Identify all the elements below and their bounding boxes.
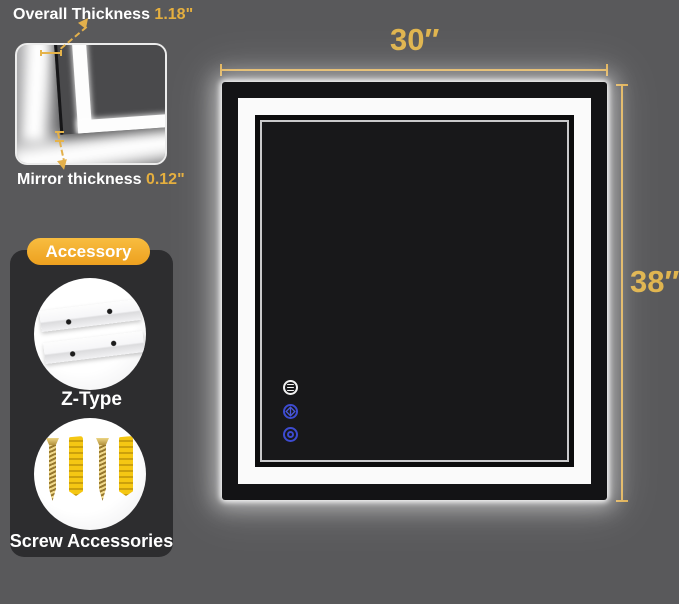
- led-mirror: [222, 82, 607, 500]
- width-dimension-label: 30″: [390, 22, 439, 58]
- mirror-thickness-value: 0.12": [146, 171, 185, 188]
- mirror-corner-photo: [15, 43, 167, 165]
- height-dimension-line: [621, 84, 623, 502]
- overall-thickness-value: 1.18": [154, 6, 193, 23]
- z-type-bracket-image: [34, 278, 146, 390]
- power-touch-button: [283, 427, 298, 442]
- wall-anchor: [119, 436, 133, 496]
- menu-lines-icon: [287, 384, 294, 386]
- z-bracket: [43, 331, 145, 364]
- menu-lines-icon: [287, 390, 294, 392]
- mirror-glass-surface: [255, 115, 574, 467]
- double-circle-icon: [287, 431, 294, 438]
- screw-accessories-label: Screw Accessories: [5, 531, 178, 552]
- accessory-badge: Accessory: [27, 238, 150, 265]
- defog-touch-button: [283, 404, 298, 419]
- defog-eye-icon: [285, 406, 296, 417]
- overall-thickness-measure-mark: [41, 52, 61, 54]
- led-glow: [20, 43, 52, 144]
- overall-thickness-callout: Overall Thickness 1.18": [13, 6, 193, 24]
- mirror-edge-closeup: [53, 43, 167, 135]
- arrow-down-icon: [57, 159, 69, 171]
- wall-anchor: [69, 436, 83, 496]
- mirror-thickness-callout: Mirror thickness 0.12": [17, 171, 185, 189]
- menu-lines-icon: [287, 387, 294, 389]
- z-bracket: [39, 299, 141, 332]
- z-type-label: Z-Type: [5, 389, 178, 411]
- screw: [46, 438, 59, 502]
- mirror-thickness-label: Mirror thickness: [17, 171, 141, 188]
- screw: [96, 438, 109, 502]
- screw-accessories-image: [34, 418, 146, 530]
- width-dimension-line: [220, 69, 608, 71]
- light-setting-touch-button: [283, 380, 298, 395]
- product-infographic: Overall Thickness 1.18" Mirror thickness…: [0, 0, 679, 604]
- height-dimension-label: 38″: [630, 264, 679, 300]
